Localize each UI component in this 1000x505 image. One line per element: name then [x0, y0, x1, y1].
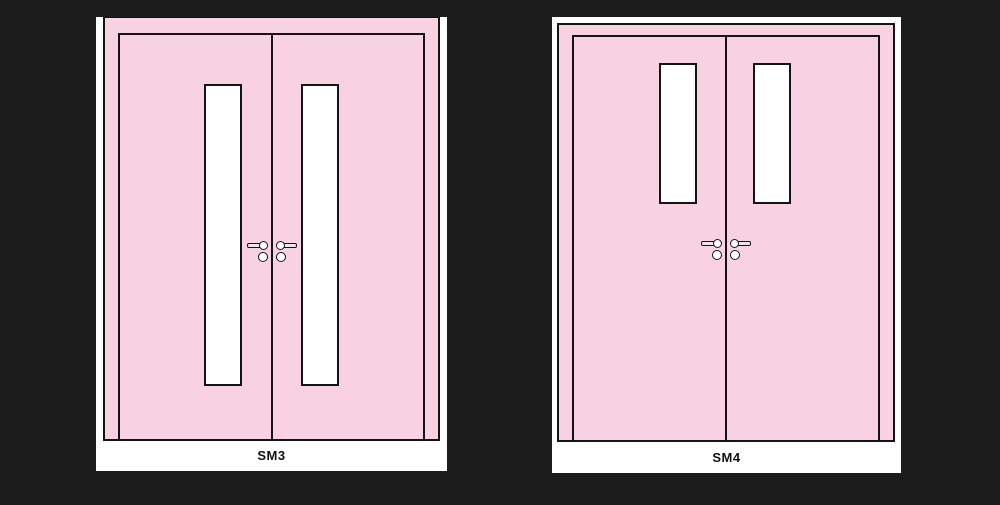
- door-leaves-sm4: [572, 35, 880, 442]
- door-label-sm3: SM3: [96, 441, 447, 471]
- handle-rose-right-icon: [276, 241, 285, 250]
- vision-panel-right: [301, 84, 339, 386]
- handle-rose-left-icon: [713, 239, 722, 248]
- escutcheon-right-icon: [276, 252, 286, 262]
- door-frame-sm3: [103, 17, 440, 441]
- drawing-canvas: SM3 SM4: [0, 0, 1000, 505]
- escutcheon-right-icon: [730, 250, 740, 260]
- door-unit-sm4: SM4: [552, 17, 901, 473]
- escutcheon-left-icon: [712, 250, 722, 260]
- vision-panel-right: [753, 63, 791, 204]
- escutcheon-left-icon: [258, 252, 268, 262]
- door-frame-sm4: [557, 23, 895, 442]
- door-label-sm4: SM4: [552, 442, 901, 473]
- vision-panel-left: [204, 84, 242, 386]
- door-unit-sm3: SM3: [96, 17, 447, 471]
- vision-panel-left: [659, 63, 697, 204]
- handle-rose-left-icon: [259, 241, 268, 250]
- door-leaves-sm3: [118, 33, 425, 441]
- handle-rose-right-icon: [730, 239, 739, 248]
- door-hardware: [668, 235, 784, 267]
- door-hardware: [214, 237, 330, 269]
